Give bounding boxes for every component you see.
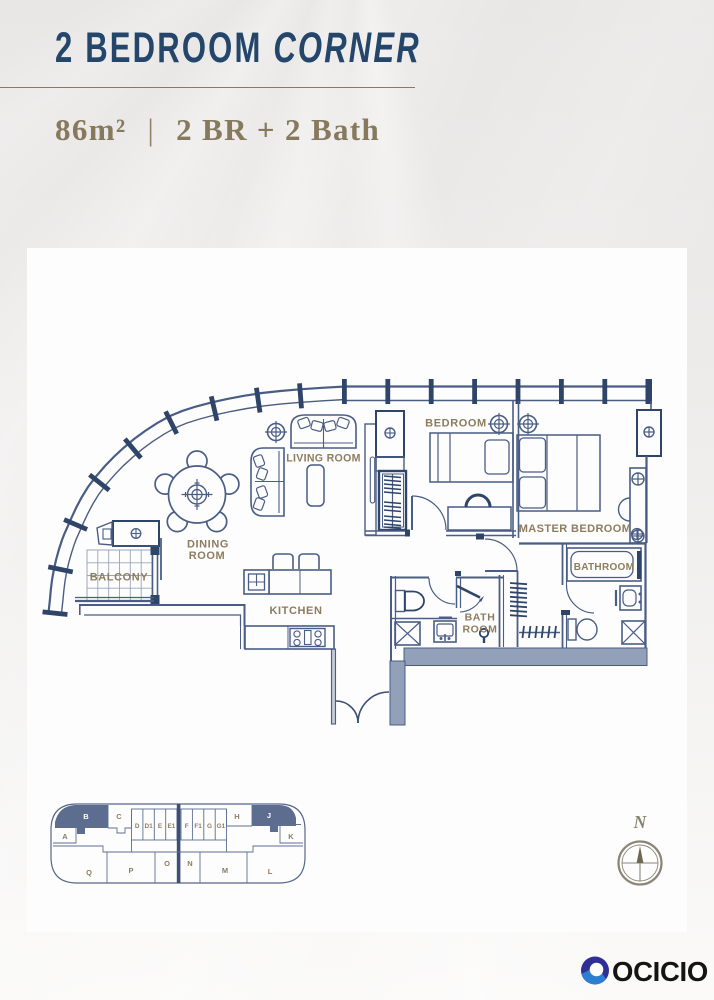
svg-text:D: D: [135, 823, 140, 830]
svg-text:F1: F1: [194, 823, 202, 830]
svg-text:A: A: [62, 832, 68, 841]
svg-text:LIVING ROOM: LIVING ROOM: [286, 453, 361, 465]
svg-text:K: K: [288, 832, 294, 841]
svg-text:BATH: BATH: [465, 612, 496, 624]
svg-text:BALCONY: BALCONY: [90, 572, 149, 584]
svg-text:B: B: [83, 812, 89, 821]
svg-text:O: O: [164, 859, 170, 868]
svg-text:F: F: [185, 823, 189, 830]
svg-text:MASTER BEDROOM: MASTER BEDROOM: [519, 523, 632, 535]
svg-text:J: J: [267, 811, 271, 820]
svg-text:M: M: [222, 866, 228, 875]
svg-text:BEDROOM: BEDROOM: [425, 418, 487, 430]
svg-text:N: N: [633, 812, 648, 832]
svg-text:DINING: DINING: [187, 539, 229, 551]
svg-text:E1: E1: [167, 823, 175, 830]
svg-text:Q: Q: [86, 868, 92, 877]
svg-text:ROOM: ROOM: [462, 624, 497, 636]
svg-text:N: N: [187, 859, 192, 868]
svg-text:BATHROOM: BATHROOM: [574, 562, 635, 573]
svg-text:D1: D1: [145, 823, 154, 830]
svg-text:KITCHEN: KITCHEN: [269, 605, 322, 617]
svg-text:ROOM: ROOM: [189, 550, 226, 562]
svg-text:H: H: [234, 812, 239, 821]
svg-text:G1: G1: [217, 823, 226, 830]
svg-text:C: C: [116, 812, 122, 821]
svg-text:OCICIO: OCICIO: [612, 956, 708, 987]
svg-text:P: P: [128, 866, 133, 875]
svg-text:G: G: [207, 823, 212, 830]
svg-text:L: L: [268, 867, 273, 876]
svg-text:E: E: [158, 823, 163, 830]
